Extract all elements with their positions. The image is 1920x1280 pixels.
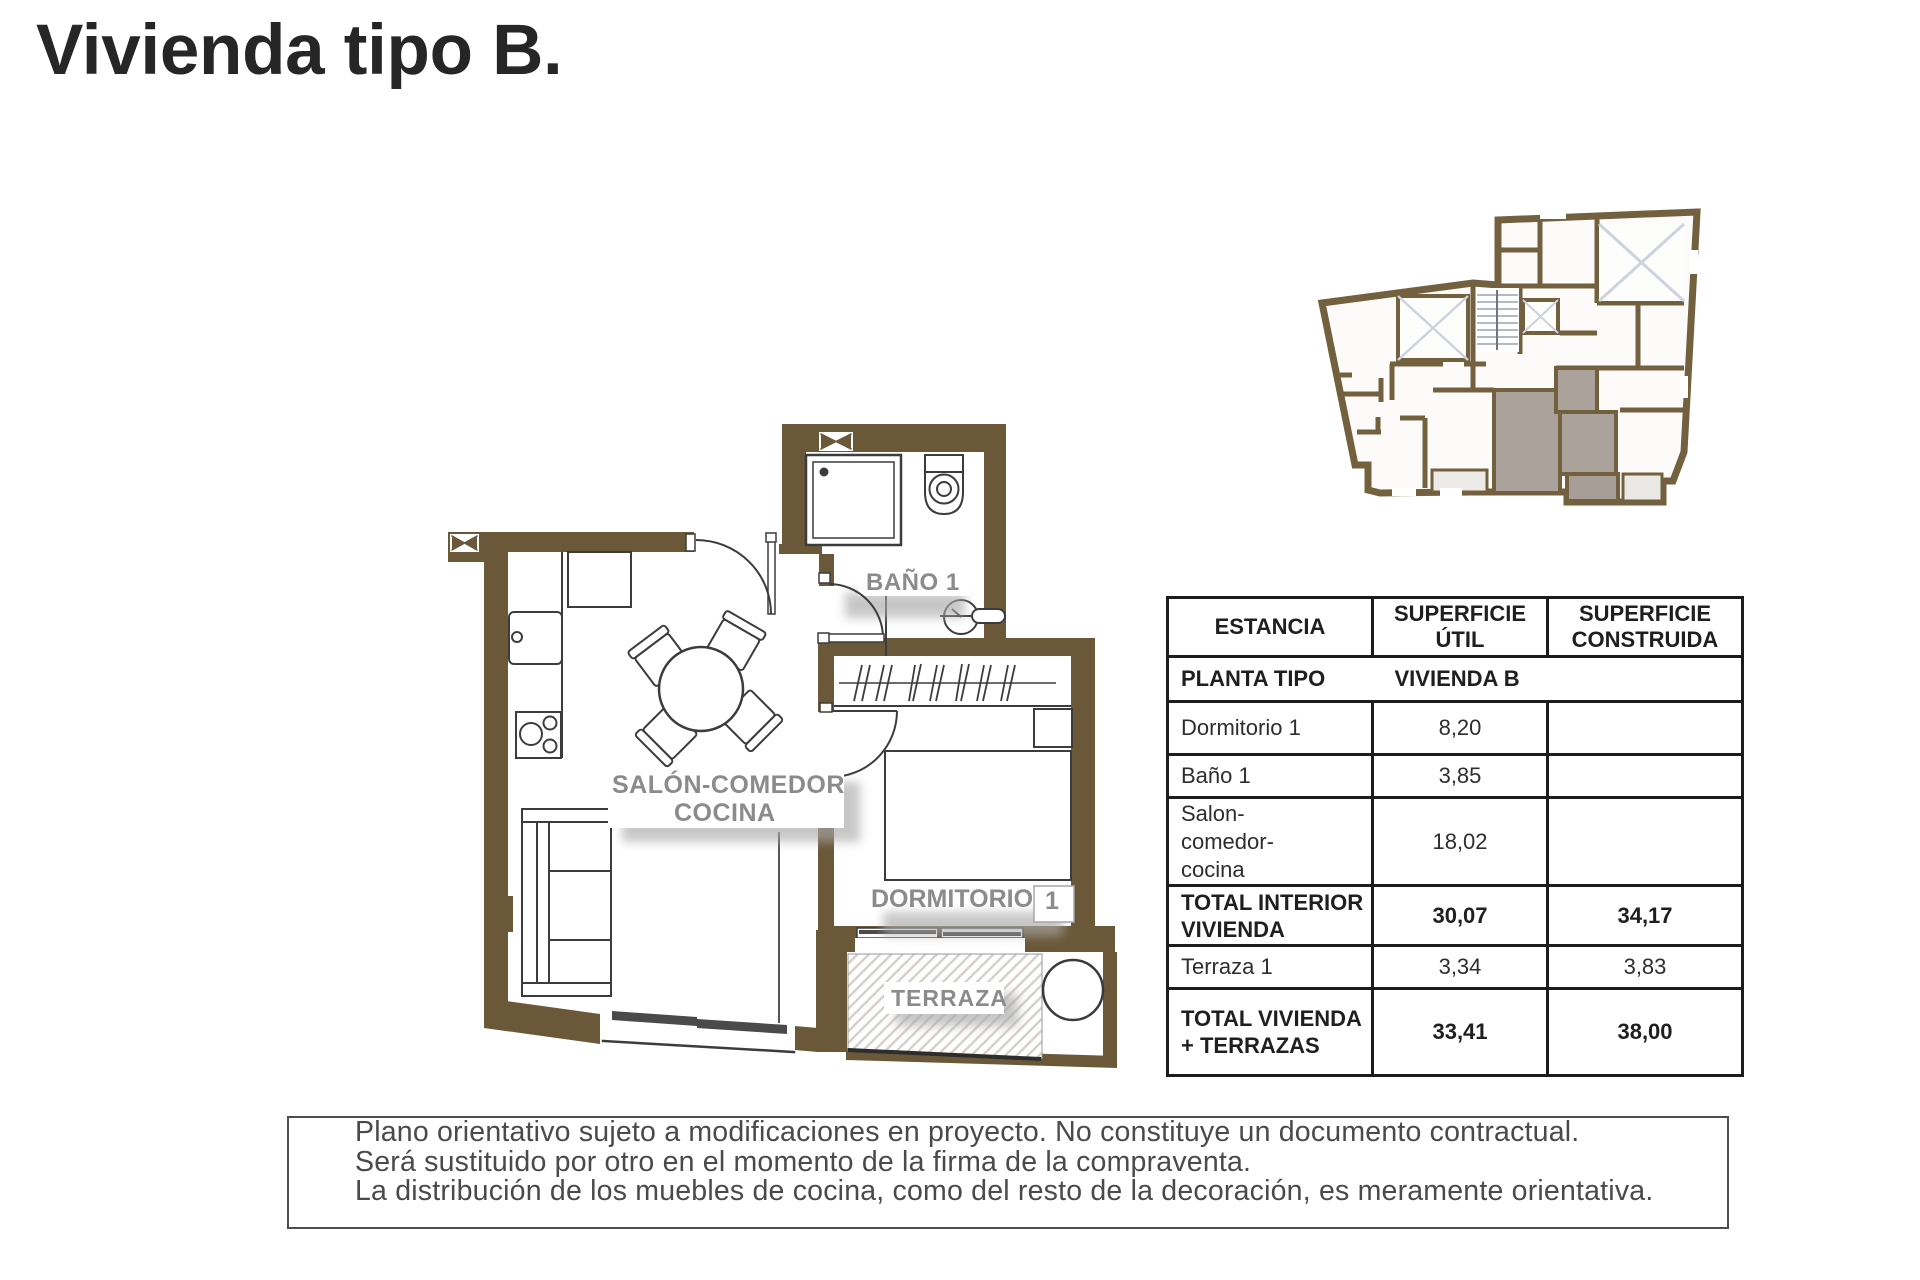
- svg-text:BAÑO 1: BAÑO 1: [866, 568, 960, 596]
- svg-text:SALÓN-COMEDOR: SALÓN-COMEDOR: [612, 769, 845, 799]
- svg-text:DORMITORIO: DORMITORIO: [871, 885, 1033, 913]
- svg-text:COCINA: COCINA: [674, 799, 776, 827]
- svg-text:TERRAZA: TERRAZA: [891, 985, 1008, 1011]
- svg-text:1: 1: [1045, 887, 1059, 915]
